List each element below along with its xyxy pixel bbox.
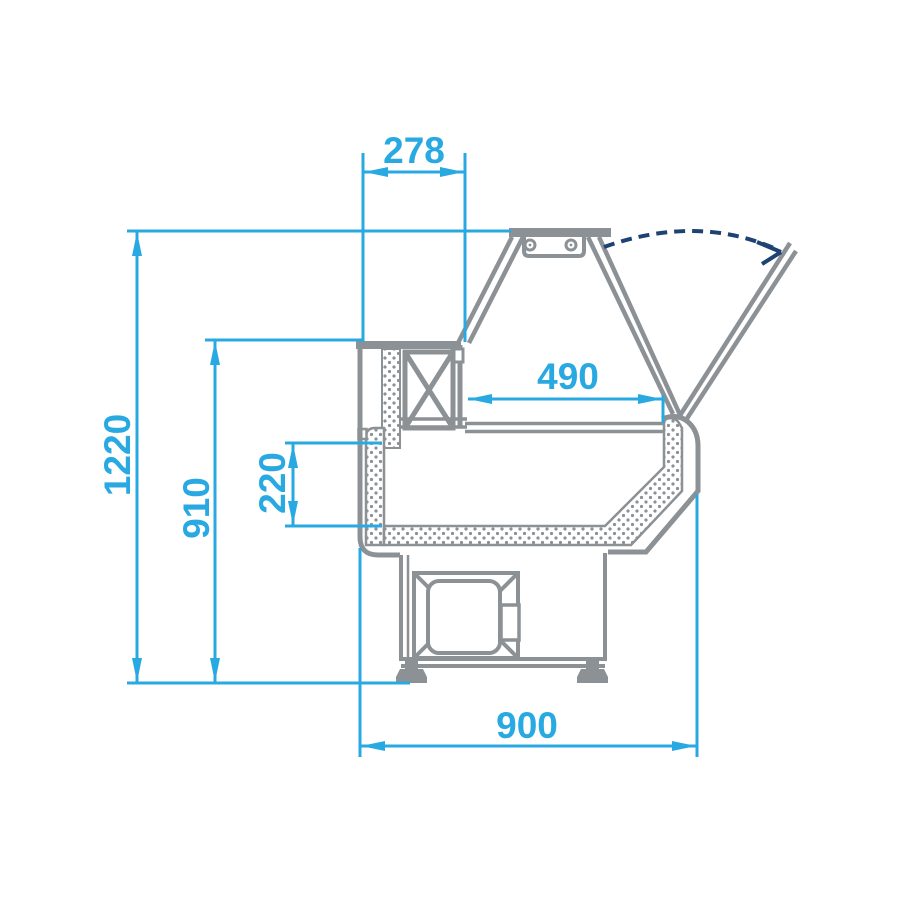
foot-pad — [396, 669, 427, 683]
base-unit — [401, 553, 605, 666]
rear-glass — [458, 237, 523, 343]
foot-stem — [405, 659, 418, 670]
foot-stem — [586, 659, 599, 670]
compressor-unit — [428, 581, 500, 653]
dimension-490 — [468, 394, 663, 423]
base-side-block — [501, 605, 519, 640]
cross-section-drawing: 278 1220 910 220 490 900 — [0, 0, 900, 900]
canopy-top — [509, 228, 611, 237]
front-glass-closed — [588, 237, 681, 417]
air-duct-cross-box — [405, 352, 453, 428]
dimension-labels: 278 1220 910 220 490 900 — [97, 130, 599, 746]
swing-arc-dashed — [604, 231, 776, 249]
adjustable-feet — [396, 659, 608, 683]
front-glass-opened — [679, 243, 796, 420]
drawing-canvas: 278 1220 910 220 490 900 — [0, 0, 900, 900]
dimension-278 — [363, 153, 465, 342]
canopy-screw-dot — [529, 244, 532, 247]
dim-label-well-depth: 220 — [252, 452, 293, 514]
foot-pad — [577, 669, 608, 683]
compartment-chamfer — [500, 640, 518, 658]
dim-label-display-depth: 490 — [537, 356, 599, 397]
canopy-screw-dot — [570, 244, 573, 247]
deck-and-front-insulation — [384, 418, 682, 545]
dim-label-overall-depth: 900 — [496, 705, 558, 746]
counter-body — [356, 228, 796, 683]
dim-label-body-height: 910 — [176, 477, 217, 539]
compartment-chamfer — [500, 573, 518, 591]
dim-label-top-width: 278 — [383, 130, 445, 171]
dim-label-overall-height: 1220 — [97, 414, 138, 496]
rear-section-top-bar — [356, 341, 461, 349]
glass-swing-arc — [604, 231, 781, 264]
